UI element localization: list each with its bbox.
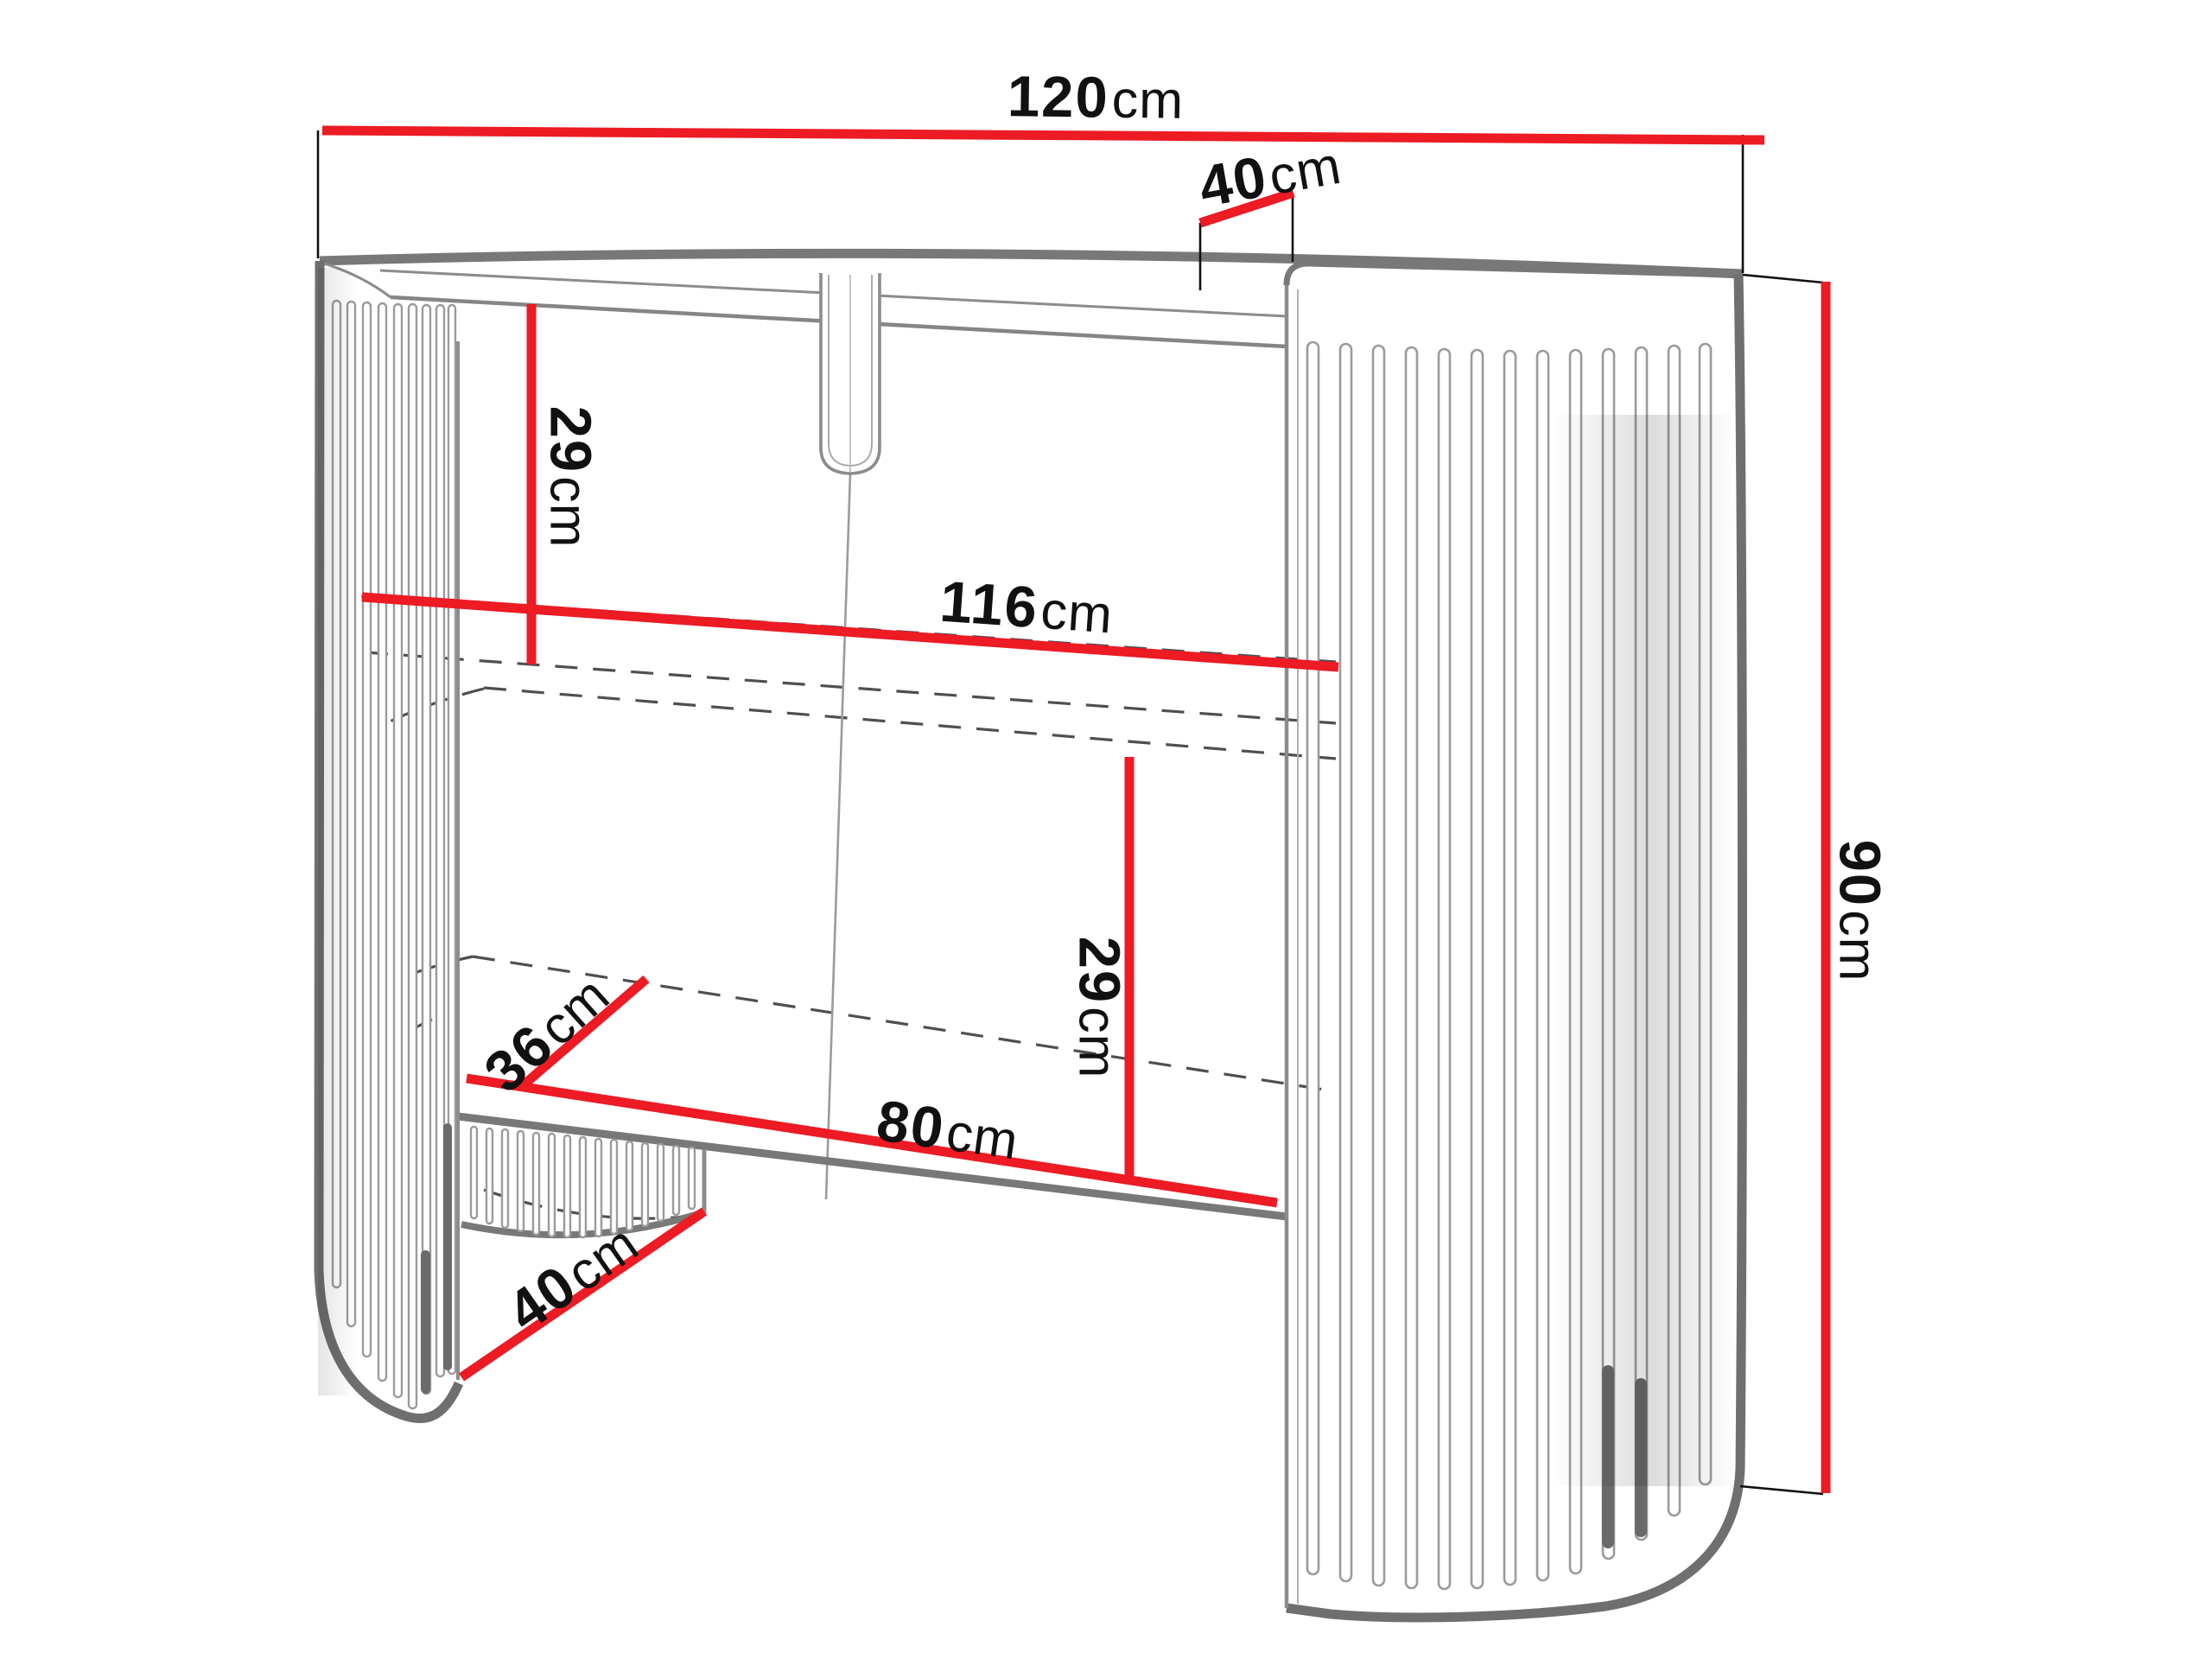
dim-value: 116: [938, 569, 1040, 641]
arch-comb-slats: [471, 1127, 695, 1237]
center-niche: [821, 273, 880, 1199]
extension-line: [1743, 275, 1823, 283]
left-leg: [318, 261, 459, 1419]
dim-unit: cm: [1829, 910, 1888, 982]
extension-line: [1740, 1486, 1823, 1494]
dim-unit: cm: [1264, 136, 1345, 206]
dim-unit: cm: [1069, 1007, 1128, 1078]
dimension-drawing: 120cm 40cm 29cm 116cm 29cm 36cm 80cm 40c…: [0, 0, 2212, 1659]
door-seam: [826, 474, 850, 1199]
upper-shelf-hidden-lines: [328, 594, 1336, 759]
dim-label-shelf-to-base-gap: 29cm: [1071, 937, 1128, 1079]
upper-shelf-underside-hidden: [484, 688, 1336, 759]
dim-value: 80: [873, 1088, 949, 1161]
right-leg: [1287, 264, 1742, 1618]
dim-line-opening-width: [467, 1078, 1277, 1203]
dim-value: 90: [1827, 840, 1892, 908]
dim-label-overall-height: 90cm: [1831, 840, 1889, 982]
dim-unit: cm: [1111, 70, 1184, 130]
right-leg-shading: [1551, 415, 1737, 1486]
dim-unit: cm: [1039, 581, 1115, 645]
dim-value: 120: [1007, 64, 1109, 130]
dim-label-inner-width: 116cm: [938, 573, 1116, 643]
dim-unit: cm: [943, 1103, 1022, 1171]
dim-unit: cm: [540, 476, 599, 548]
dim-value: 29: [538, 406, 603, 474]
upper-shelf-front-edge-hidden: [365, 652, 1336, 723]
left-leg-shading: [318, 268, 358, 1395]
dim-label-top-to-shelf-gap: 29cm: [542, 406, 600, 549]
dim-label-overall-width: 120cm: [1007, 67, 1185, 127]
dim-line-overall-width: [322, 130, 1764, 140]
furniture-line-art: [0, 0, 2212, 1659]
dim-value: 40: [1194, 144, 1272, 219]
dim-line-inner-width: [362, 597, 1338, 667]
dim-value: 29: [1067, 937, 1132, 1005]
